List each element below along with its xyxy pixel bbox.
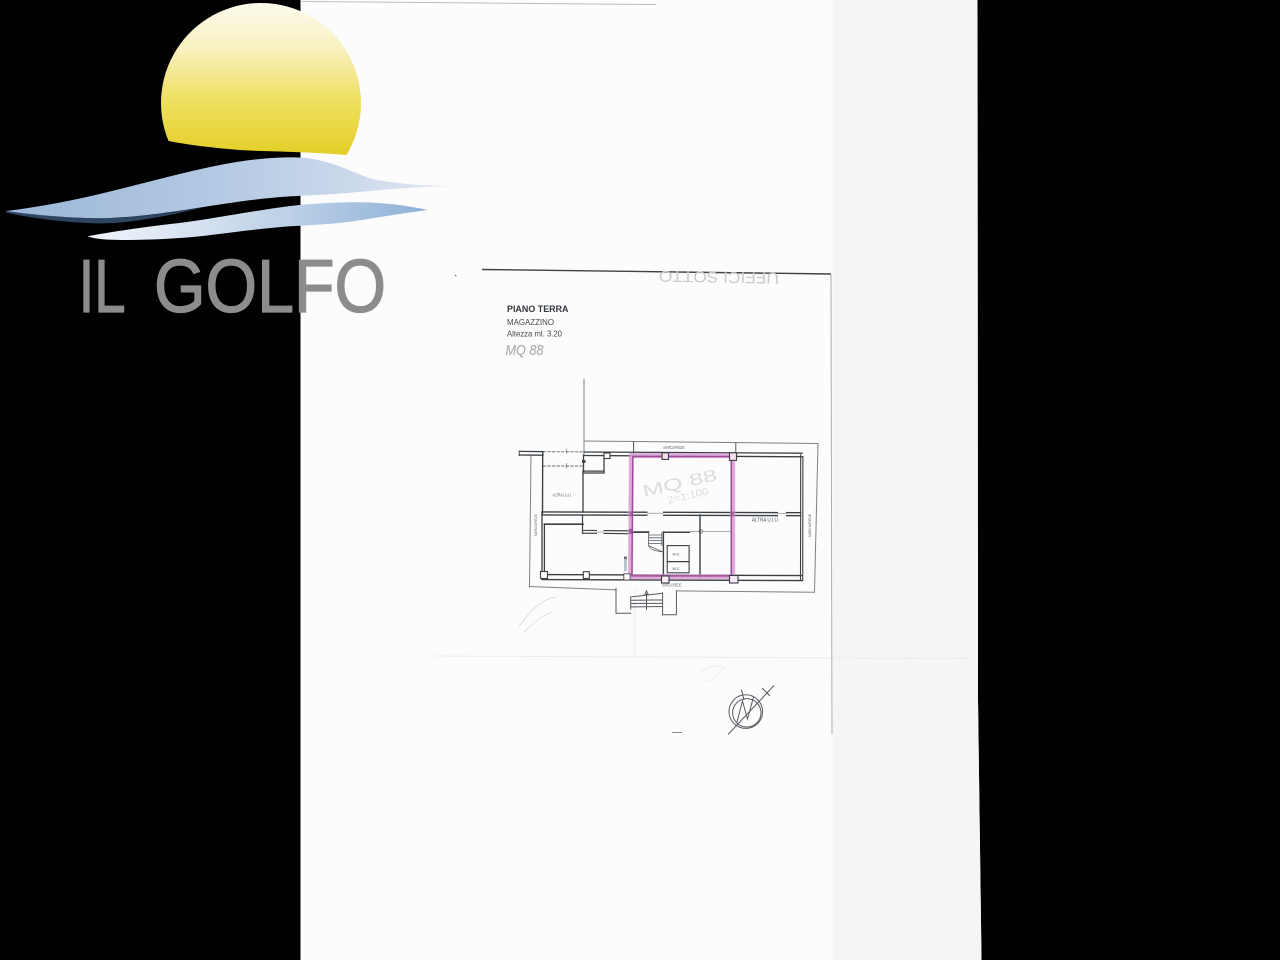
svg-text:MARCIAPIEDE: MARCIAPIEDE — [662, 582, 681, 587]
svg-text:GOLFO: GOLFO — [154, 244, 386, 328]
svg-text:MQ 88: MQ 88 — [506, 343, 544, 359]
svg-text:ALTRA U.I.U.: ALTRA U.I.U. — [752, 518, 779, 524]
svg-text:W.C.: W.C. — [673, 552, 681, 556]
svg-text:MARCIAPIEDE: MARCIAPIEDE — [807, 514, 812, 537]
svg-text:MARCIAPIEDE: MARCIAPIEDE — [664, 445, 685, 450]
svg-text:Altezza ml. 3.20: Altezza ml. 3.20 — [507, 330, 563, 339]
svg-text:ALTRA U.I.U.: ALTRA U.I.U. — [553, 493, 572, 498]
svg-text:W.C.: W.C. — [673, 567, 681, 571]
svg-text:IL: IL — [79, 244, 126, 328]
svg-text:MAGAZZINO: MAGAZZINO — [507, 318, 554, 327]
svg-text:PIANO TERRA: PIANO TERRA — [507, 304, 569, 315]
svg-text:UFFICI SOTTO: UFFICI SOTTO — [659, 267, 779, 286]
svg-text:MARCIAPIEDE: MARCIAPIEDE — [533, 514, 538, 536]
